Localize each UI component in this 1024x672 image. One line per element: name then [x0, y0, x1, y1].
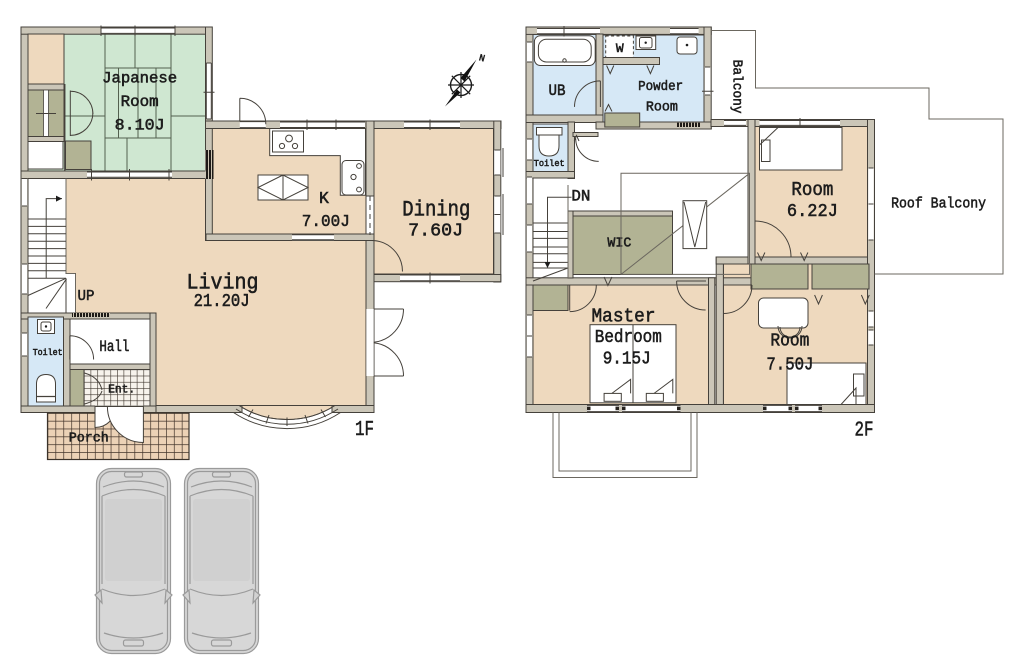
- svg-text:7.00J: 7.00J: [302, 213, 350, 232]
- svg-text:7.60J: 7.60J: [408, 222, 463, 242]
- svg-text:Master: Master: [592, 306, 656, 328]
- svg-text:8.10J: 8.10J: [115, 117, 165, 135]
- svg-text:Balcony: Balcony: [729, 60, 744, 114]
- svg-text:6.22J: 6.22J: [787, 202, 838, 222]
- svg-text:K: K: [319, 189, 329, 208]
- svg-text:9.15J: 9.15J: [603, 350, 651, 370]
- svg-text:Room: Room: [646, 100, 678, 116]
- svg-text:DN: DN: [571, 188, 590, 206]
- svg-text:Porch: Porch: [69, 431, 109, 447]
- svg-text:UB: UB: [549, 82, 566, 100]
- svg-text:7.50J: 7.50J: [766, 356, 813, 376]
- svg-text:Bedroom: Bedroom: [595, 328, 662, 348]
- svg-text:Japanese: Japanese: [102, 70, 177, 88]
- svg-text:WIC: WIC: [607, 236, 631, 252]
- svg-text:Powder: Powder: [638, 79, 683, 95]
- svg-text:Toilet: Toilet: [534, 158, 565, 169]
- svg-text:N: N: [478, 52, 486, 64]
- svg-text:Room: Room: [121, 93, 159, 111]
- svg-text:Ent.: Ent.: [108, 383, 135, 397]
- svg-text:Room: Room: [791, 179, 833, 201]
- svg-text:Toilet: Toilet: [33, 347, 63, 358]
- svg-text:2F: 2F: [855, 420, 874, 443]
- svg-text:Hall: Hall: [99, 338, 129, 356]
- svg-text:UP: UP: [78, 288, 95, 305]
- svg-text:Dining: Dining: [402, 198, 470, 223]
- svg-text:21.20J: 21.20J: [194, 292, 250, 312]
- svg-text:1F: 1F: [355, 419, 374, 442]
- svg-text:Roof Balcony: Roof Balcony: [891, 196, 986, 213]
- svg-text:W: W: [616, 41, 624, 56]
- svg-text:Room: Room: [770, 332, 809, 352]
